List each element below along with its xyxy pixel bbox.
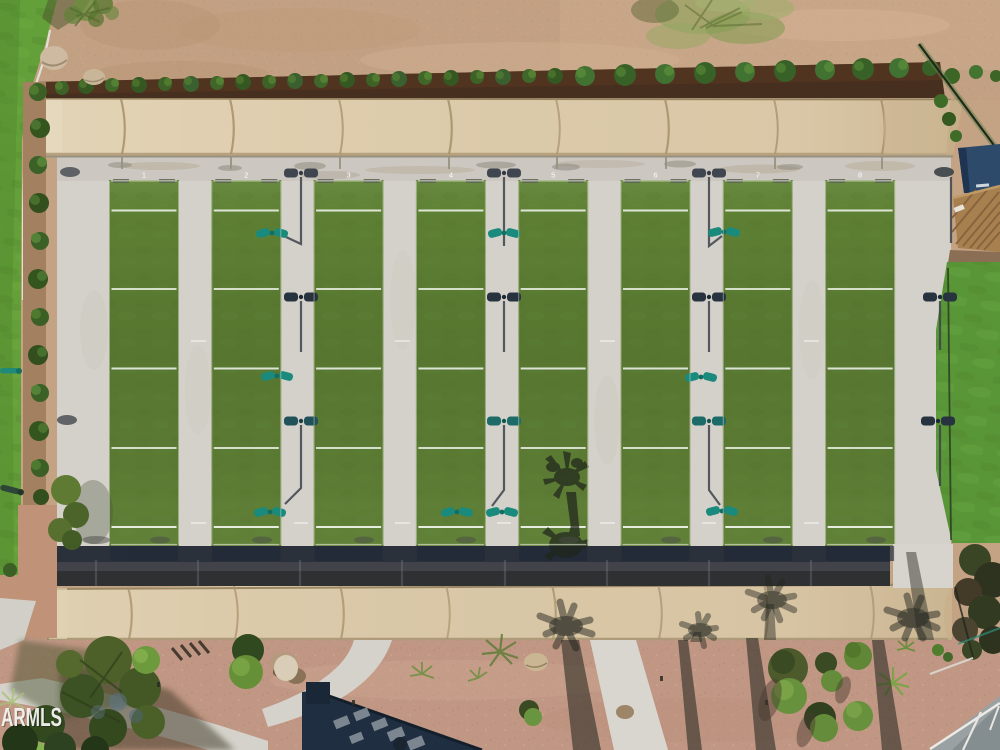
svg-text:3: 3	[347, 171, 351, 180]
svg-text:7: 7	[756, 171, 760, 180]
svg-text:2: 2	[244, 171, 248, 180]
svg-text:ARMLS: ARMLS	[1, 702, 62, 732]
svg-text:1: 1	[142, 171, 146, 180]
svg-text:6: 6	[653, 171, 657, 180]
svg-text:5: 5	[551, 171, 555, 180]
svg-text:4: 4	[449, 171, 453, 180]
svg-text:8: 8	[858, 171, 862, 180]
